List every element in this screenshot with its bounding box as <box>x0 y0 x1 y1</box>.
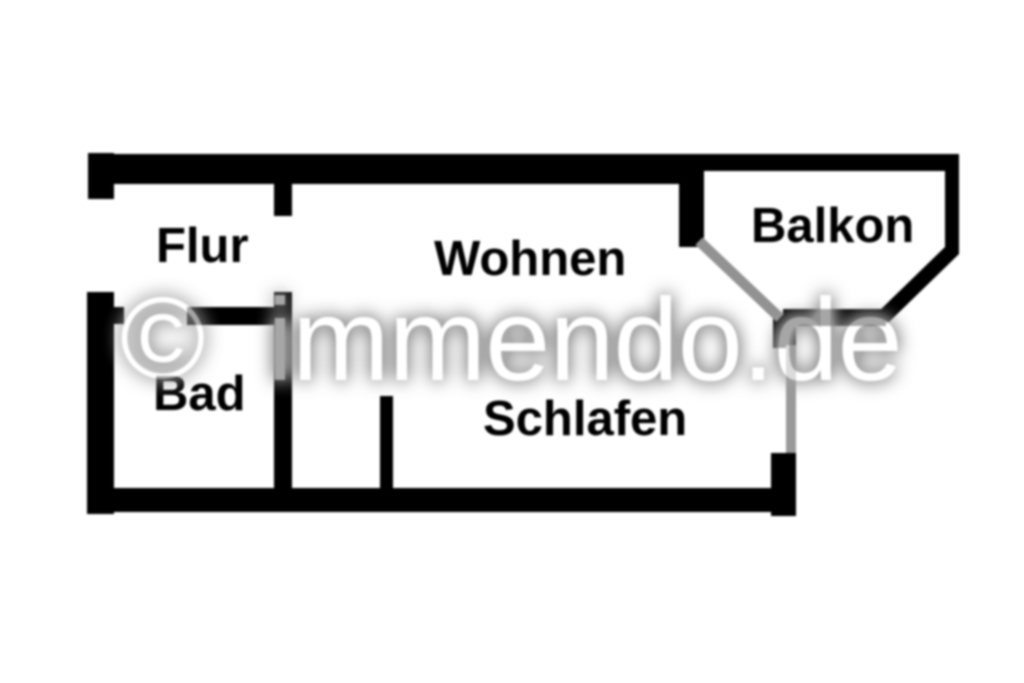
svg-text:immendo.de: immendo.de <box>267 274 902 405</box>
svg-text:Balkon: Balkon <box>751 199 914 253</box>
svg-text:Flur: Flur <box>156 219 249 273</box>
svg-text:©: © <box>120 273 205 403</box>
